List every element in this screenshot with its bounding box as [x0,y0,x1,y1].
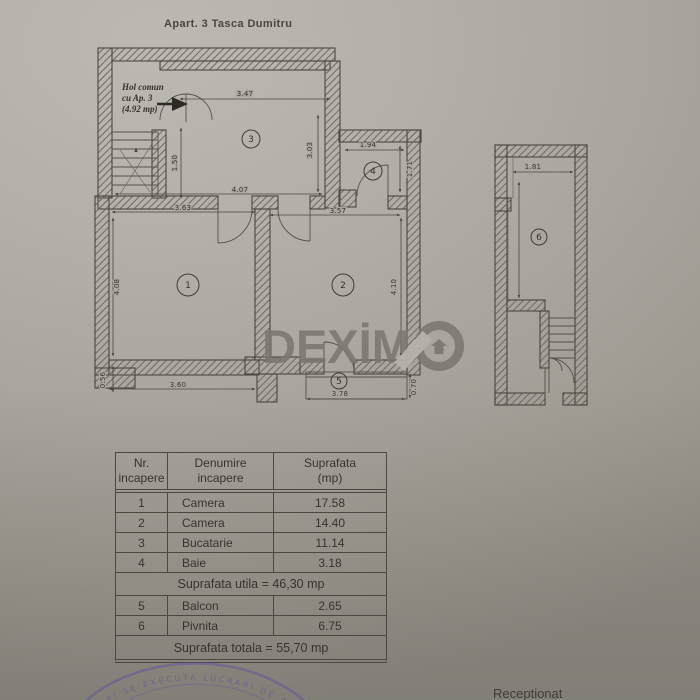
scanned-floorplan-document: Apart. 3 Tasca Dumitru [0,0,700,700]
svg-text:CPI SE EXECUTA LUCRARI DE CAD: CPI SE EXECUTA LUCRARI DE CAD [98,673,303,700]
receptionat-label: Receptionat [493,686,562,700]
stamp-text: CPI SE EXECUTA LUCRARI DE CAD [98,673,303,700]
ink-stamp: CPI SE EXECUTA LUCRARI DE CAD [0,0,700,700]
